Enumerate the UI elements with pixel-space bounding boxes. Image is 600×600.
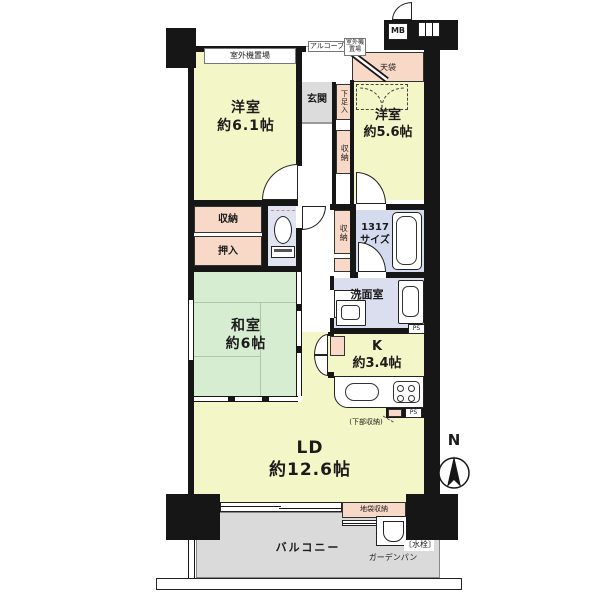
toilet-dashed-line [271, 210, 295, 211]
wall-inner [262, 206, 268, 272]
room-size: 約6.1帖 [217, 117, 275, 135]
hall-storage-label: 収納 [338, 136, 350, 170]
room-western2-label: 洋室 約5.6帖 [352, 104, 424, 146]
window-mullion [432, 23, 433, 36]
entrance-label: 玄関 [302, 92, 332, 106]
wall-hall-right [332, 82, 336, 206]
tatami-line [194, 302, 298, 303]
stove-burner [397, 385, 404, 392]
room-size: 約12.6帖 [269, 459, 351, 481]
oshiire-label: 押入 [194, 240, 262, 262]
sliding-door-handle [262, 397, 269, 401]
room-size: 約5.6帖 [363, 125, 412, 142]
compass-north-label: N [442, 432, 466, 450]
bathroom-label: 1317 サイズ [356, 220, 394, 248]
wall-kitchen-stub [328, 332, 334, 336]
room-size: 約3.4帖 [352, 356, 401, 373]
compass-icon [436, 452, 472, 492]
storage-label: 収納 [338, 224, 348, 242]
washing-machine-pan-icon [398, 280, 424, 324]
bathtub-icon [392, 212, 422, 270]
room-name: K [372, 339, 382, 356]
window-line [221, 506, 281, 507]
kitchen-sink-icon [345, 383, 379, 401]
window-tatami-west [188, 300, 194, 360]
entrance-step-line [302, 122, 332, 124]
counter-end-storage [388, 409, 402, 417]
room-western1-label: 洋室 約6.1帖 [200, 96, 292, 138]
sliding-door-tatami-south [194, 396, 298, 402]
stove-burner [408, 395, 415, 402]
alcove-label-box: アルコーブ [308, 41, 346, 52]
stove-icon [393, 381, 420, 403]
closet-label: 収納 [194, 208, 262, 230]
wall-bath-bottom [386, 272, 424, 278]
wall-inner [194, 266, 298, 272]
room-name: バルコニー [276, 541, 341, 555]
outdoor-unit-area: 室外機置場 [204, 48, 296, 64]
wall-washroom-left [330, 276, 334, 290]
sliding-door-handle [297, 304, 301, 311]
pipe-space-box: PS [408, 324, 425, 334]
toilet-bowl-icon [274, 216, 292, 244]
kitchen-counter [334, 376, 424, 408]
storage-label: 天袋 [380, 63, 396, 73]
wall-left [188, 46, 194, 502]
sliding-door-handle [228, 397, 235, 401]
room-name: 洗面室 [351, 288, 384, 302]
wall-bath-bottom [350, 272, 358, 278]
wall-hall-left [296, 46, 302, 166]
wall-corner-bottomleft [166, 494, 220, 540]
wall-toilet [296, 228, 302, 272]
washroom-label: 洗面室 [336, 288, 398, 302]
storage-label: (下部収納) [349, 418, 382, 427]
wall-western2-bottom [386, 204, 424, 210]
bath-side-storage2-floor [334, 258, 351, 272]
room-name: 玄関 [307, 93, 327, 106]
toilet-tank-icon [271, 246, 295, 258]
outdoor-unit-small-box: 室外機置場 [344, 38, 366, 56]
stove-burner [408, 385, 415, 392]
room-name: 和室 [231, 317, 261, 335]
corridor-window [418, 22, 440, 37]
water-tap-label: 〔水栓〕 [404, 540, 434, 551]
outdoor-unit-label: 室外機置場 [230, 51, 270, 61]
door-arc-meterbox [392, 2, 412, 20]
washing-machine-inner [402, 286, 419, 317]
room-name: LD [297, 437, 324, 459]
room-tatami-label: 和室 約6帖 [200, 314, 292, 356]
meter-box: MB [388, 23, 408, 40]
storage-label: 押入 [218, 245, 238, 258]
window-line [279, 508, 341, 509]
pipe-space-label: PS [410, 409, 417, 417]
meter-box-label: MB [391, 26, 405, 36]
door-arc-toilet [302, 206, 326, 230]
window-ld-sliding [220, 502, 342, 512]
room-size: 約6帖 [226, 335, 267, 353]
kitchen-label: K 約3.4帖 [336, 338, 418, 374]
pipe-space-label: PS [413, 325, 420, 333]
jibukuro-label: 地袋収納 [360, 505, 388, 514]
outdoor-unit-small-label: 室外機置場 [346, 40, 364, 54]
tenbukuro-label: 天袋 [372, 62, 404, 74]
garden-pan-text: ガーデンパン [369, 553, 417, 563]
garden-pan-inner [383, 521, 404, 542]
sliding-door-tatami-east [296, 272, 302, 396]
storage-label: 収納 [339, 144, 349, 162]
bath-side-storage-label: 収納 [337, 216, 349, 250]
sliding-door-handle [297, 346, 301, 353]
wash-basin-icon [336, 300, 366, 326]
storage-label: 収納 [218, 213, 238, 226]
room-name: 洋室 [231, 99, 261, 117]
wall-corner-bottomright [406, 494, 458, 540]
wall-right [424, 50, 440, 502]
north-letter: N [448, 431, 461, 451]
balcony-base-line [156, 578, 462, 590]
wash-basin-inner [341, 305, 360, 320]
floor-plan: 室外機置場 地袋収納 MB [0, 0, 600, 600]
toilet-tank-lid [274, 249, 292, 252]
compass-needle [436, 452, 472, 492]
bath-size-line1: 1317 [361, 221, 389, 234]
water-tap-text: 〔水栓〕 [404, 540, 434, 550]
window-mullion [425, 23, 426, 36]
bath-size-line2: サイズ [360, 234, 390, 247]
stove-burner [397, 395, 404, 402]
garden-pan-label: ガーデンパン [368, 553, 418, 564]
pipe-space-box: PS [405, 408, 422, 418]
bathtub-inner [396, 216, 417, 265]
balcony-label: バルコニー [248, 540, 368, 556]
tatami-line [194, 356, 260, 357]
alcove-label: アルコーブ [310, 42, 344, 51]
under-counter-storage-label: (下部収納) [338, 418, 394, 428]
room-name: 洋室 [375, 108, 401, 125]
living-dining-label: LD 約12.6帖 [230, 436, 390, 482]
shoe-cabinet-label: 下足入 [338, 86, 350, 118]
wall-inner [194, 200, 298, 206]
storage-label: 下足入 [339, 90, 348, 114]
